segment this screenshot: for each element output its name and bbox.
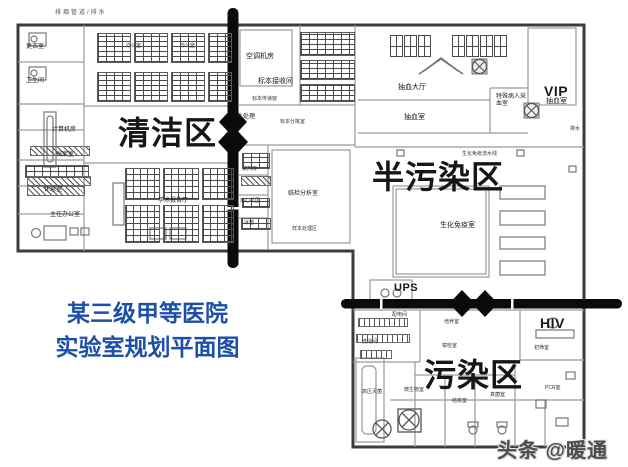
- room-label-fridge: 冰箱: [244, 221, 254, 227]
- room-label-ups: UPS: [394, 282, 418, 295]
- room-label-pcr: PCR室: [545, 386, 561, 392]
- lecture-seats: [163, 205, 199, 243]
- pipe-annotation: 排烟管道/排水: [55, 7, 107, 16]
- watermark: 头条 @暖通南社: [497, 434, 628, 467]
- waiting-chair: [480, 35, 493, 57]
- room-label-lounge: 休息室: [44, 187, 62, 194]
- room-label-biochem-line: 生化免疫流水线: [462, 152, 497, 158]
- lecture-seats: [202, 168, 234, 200]
- plan-title-line1: 某三级甲等医院: [35, 296, 260, 330]
- room-label-water: 水处理: [237, 114, 255, 121]
- lab-bench: [134, 72, 168, 102]
- zone-label-clean: 清洁区: [118, 108, 217, 154]
- lecture-seats: [163, 168, 199, 200]
- room-label-sort: 标本分拣室: [280, 120, 305, 126]
- counter-row: [360, 350, 392, 359]
- bar-slit: [380, 299, 383, 309]
- room-label-centrifuge: 离心机区: [240, 199, 260, 205]
- room-label-archive: 档案室: [56, 152, 74, 159]
- room-label-vip-sub: 抽血室: [546, 98, 567, 106]
- room-label-fungus: 真菌室: [490, 393, 505, 399]
- room-label-biochem: 生化免疫室: [440, 222, 475, 230]
- room-label-office2: 办公室: [180, 44, 195, 50]
- room-label-micro: 微生物室: [404, 388, 424, 394]
- room-label-office1: 办公室: [126, 44, 141, 50]
- room-label-computer: 计算机房: [52, 127, 76, 134]
- lab-bench: [208, 33, 232, 63]
- waiting-chair: [452, 35, 465, 57]
- toilet-stalls: [300, 60, 355, 80]
- room-label-special-draw: 特殊病人采血室: [496, 94, 528, 108]
- room-label-changing: 更衣室: [26, 44, 44, 51]
- room-label-reagent: 试剂库: [242, 167, 257, 173]
- bar-slit: [511, 299, 514, 309]
- waiting-chair: [418, 35, 431, 57]
- room-label-toilet: 卫生间: [26, 78, 44, 85]
- lecture-seats: [125, 168, 160, 200]
- room-label-pass-window: 标本传递窗: [252, 97, 277, 103]
- room-label-hiv-screen: 初筛室: [534, 346, 549, 352]
- room-label-draw-room: 抽血室: [404, 114, 425, 122]
- waiting-chair: [390, 35, 403, 57]
- room-label-drain: 排水: [570, 127, 580, 133]
- room-label-scope: 镜检室: [442, 344, 457, 350]
- toilet-stalls: [300, 32, 355, 56]
- room-label-tb: 结核室: [452, 399, 467, 405]
- room-label-vip: VIP: [544, 83, 568, 99]
- lecture-seats: [125, 205, 160, 243]
- shelf-hatch: [27, 176, 91, 186]
- room-label-specimen: 标本接收间: [258, 78, 293, 86]
- room-label-sample-line: 样本处理区: [292, 227, 317, 233]
- lecture-seats: [202, 205, 234, 243]
- waiting-chair: [466, 35, 479, 57]
- waiting-chair: [404, 35, 417, 57]
- room-label-sterilize: 高压灭菌: [362, 390, 382, 396]
- room-label-clinical: 临检分析室: [288, 191, 318, 198]
- room-label-lecture: 学术报告厅: [158, 198, 188, 205]
- room-label-director: 主任办公室: [50, 212, 80, 219]
- lab-bench: [171, 72, 205, 102]
- lab-bench: [208, 72, 232, 102]
- floorplan-page: 清洁区 半污染区 污染区 VIP 抽血室 UPS HIV 初筛室 特殊病人采血室…: [0, 0, 628, 467]
- toilet-stalls: [300, 84, 355, 102]
- room-label-ac: 空调机房: [246, 53, 274, 61]
- storage-rack: [241, 176, 271, 186]
- waiting-chair: [494, 35, 507, 57]
- counter-row: [358, 318, 408, 327]
- lab-bench: [97, 72, 131, 102]
- room-label-wash: 洗消间: [362, 340, 377, 346]
- room-label-draw-hall: 抽血大厅: [398, 84, 426, 92]
- room-label-culture: 培养室: [444, 320, 459, 326]
- zone-label-semi: 半污染区: [372, 152, 504, 198]
- room-label-hiv: HIV: [540, 315, 565, 331]
- room-label-power: 配电间: [392, 313, 407, 319]
- plan-title: 某三级甲等医院 实验室规划平面图: [35, 296, 260, 364]
- plan-title-line2: 实验室规划平面图: [35, 330, 260, 364]
- zone-label-dirty: 污染区: [424, 350, 523, 396]
